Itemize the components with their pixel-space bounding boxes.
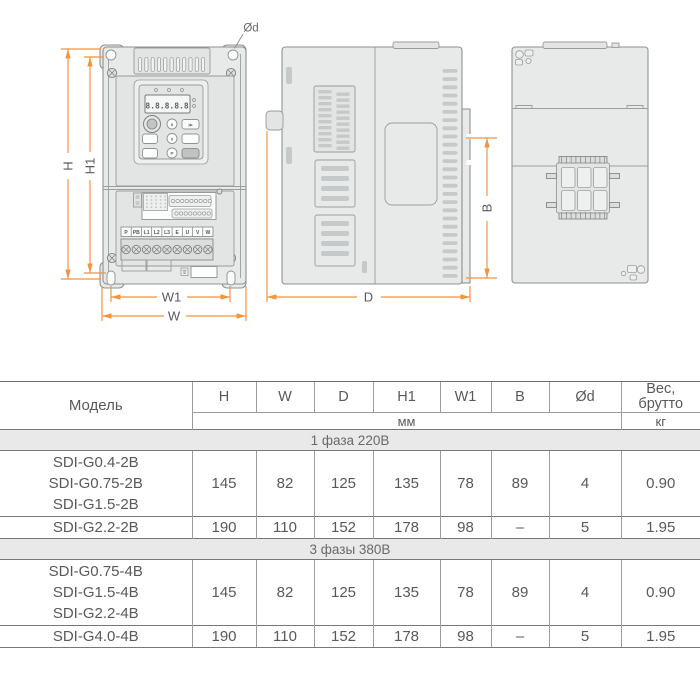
mount-hole <box>106 50 116 60</box>
din-clip-lug <box>547 203 557 208</box>
unit-led <box>193 105 196 108</box>
top-tab <box>543 42 607 49</box>
cell-od: 4 <box>549 451 621 517</box>
table-row: SDI-G0.75-4B SDI-G1.5-4B SDI-G2.2-4B 145… <box>0 560 700 626</box>
keypad: 8.8.8.8.8 ∧ ≫ ∨ P <box>134 80 208 164</box>
top-cap <box>393 42 439 49</box>
col-header-b: B <box>491 382 549 413</box>
unit-mm: мм <box>192 413 621 430</box>
cell-weight: 1.95 <box>621 517 700 539</box>
cell-w1: 98 <box>440 626 491 648</box>
dim-label-w: W <box>168 309 181 324</box>
model-name: SDI-G0.4-2B <box>0 452 192 473</box>
side-body <box>282 47 462 284</box>
model-cell: SDI-G0.4-2B SDI-G0.75-2B SDI-G1.5-2B <box>0 451 192 517</box>
terminal-label: PB <box>133 230 140 236</box>
cell-b: – <box>491 626 549 648</box>
model-name: SDI-G2.2-2B <box>0 517 192 538</box>
cell-w1: 78 <box>440 560 491 626</box>
status-led <box>168 89 171 92</box>
din-clip-lug <box>547 174 557 179</box>
col-header-od: Ød <box>549 382 621 413</box>
cell-b: – <box>491 517 549 539</box>
cell-w: 110 <box>256 626 314 648</box>
section-row-3phase: 3 фазы 380В <box>0 539 700 560</box>
cell-h1: 178 <box>373 626 440 648</box>
cell-w: 82 <box>256 560 314 626</box>
cell-w1: 98 <box>440 517 491 539</box>
unit-kg: кг <box>621 413 700 430</box>
section-label: 3 фазы 380В <box>0 539 700 560</box>
top-nub <box>612 43 619 48</box>
front-view: 8.8.8.8.8 ∧ ≫ ∨ P <box>100 45 246 288</box>
status-led <box>181 89 184 92</box>
cell-d: 152 <box>314 626 373 648</box>
model-name: SDI-G1.5-2B <box>0 494 192 515</box>
dim-label-w1: W1 <box>162 290 182 305</box>
potentiometer-knob-center <box>147 119 157 129</box>
cell-h1: 135 <box>373 451 440 517</box>
terminal-screws <box>122 245 212 253</box>
cell-h: 190 <box>192 626 256 648</box>
section-row-1phase: 1 фаза 220В <box>0 430 700 451</box>
cell-weight: 0.90 <box>621 451 700 517</box>
cell-od: 4 <box>549 560 621 626</box>
rear-view <box>512 42 648 283</box>
cell-h: 190 <box>192 517 256 539</box>
stop-button <box>143 149 158 159</box>
board-screw <box>217 189 222 194</box>
terminal-label: L1 <box>144 230 150 236</box>
terminal-label: W <box>206 230 211 236</box>
unit-led <box>193 99 196 102</box>
shift-icon: ≫ <box>188 123 193 128</box>
cell-d: 125 <box>314 451 373 517</box>
side-view <box>266 42 472 284</box>
cell-b: 89 <box>491 560 549 626</box>
col-header-weight: Вес, брутто <box>621 382 700 413</box>
cell-h1: 135 <box>373 560 440 626</box>
col-header-w1: W1 <box>440 382 491 413</box>
weight-header-line1: Вес, <box>622 382 700 397</box>
status-led <box>155 89 158 92</box>
section-label: 1 фаза 220В <box>0 430 700 451</box>
cell-od: 5 <box>549 626 621 648</box>
col-header-w: W <box>256 382 314 413</box>
model-name: SDI-G4.0-4B <box>0 626 192 647</box>
model-name: SDI-G0.75-4B <box>0 561 192 582</box>
mount-hole <box>228 50 238 60</box>
terminal-label: U <box>186 230 190 236</box>
front-slot <box>286 67 292 84</box>
front-slot <box>286 147 292 164</box>
mode-button <box>143 134 158 144</box>
weight-header-line2: брутто <box>622 397 700 412</box>
cell-w: 82 <box>256 451 314 517</box>
cell-h: 145 <box>192 560 256 626</box>
dimensions-table: Модель H W D H1 W1 B Ød Вес, брутто мм к… <box>0 381 700 648</box>
enter-button <box>182 134 199 144</box>
cell-od: 5 <box>549 517 621 539</box>
table-header-row: Модель H W D H1 W1 B Ød Вес, брутто <box>0 382 700 413</box>
din-clip-lug <box>610 174 620 179</box>
cell-weight: 1.95 <box>621 626 700 648</box>
cell-d: 152 <box>314 517 373 539</box>
model-name: SDI-G1.5-4B <box>0 582 192 603</box>
terminal-labels: P PB L1 L2 L3 E U V W <box>124 230 210 236</box>
table-row: SDI-G2.2-2B 190 110 152 178 98 – 5 1.95 <box>0 517 700 539</box>
col-header-model: Модель <box>0 382 192 430</box>
mount-slot <box>107 271 115 285</box>
din-clip-lug <box>610 203 620 208</box>
cell-h: 145 <box>192 451 256 517</box>
mount-slot <box>227 271 235 285</box>
knob-protrusion <box>266 111 283 130</box>
cell-b: 89 <box>491 451 549 517</box>
col-header-h: H <box>192 382 256 413</box>
cell-w1: 78 <box>440 451 491 517</box>
col-header-h1: H1 <box>373 382 440 413</box>
cell-weight: 0.90 <box>621 560 700 626</box>
cell-h1: 178 <box>373 517 440 539</box>
model-name: SDI-G2.2-4B <box>0 603 192 624</box>
dim-label-hole-diameter: Ød <box>243 23 258 35</box>
control-connector-top-pins <box>171 199 211 202</box>
cell-w: 110 <box>256 517 314 539</box>
model-cell: SDI-G0.75-4B SDI-G1.5-4B SDI-G2.2-4B <box>0 560 192 626</box>
display-digits: 8.8.8.8.8 <box>145 102 189 111</box>
datasheet-page: 8.8.8.8.8 ∧ ≫ ∨ P <box>0 0 700 700</box>
p-button-label: P <box>170 151 173 156</box>
run-button <box>182 149 199 159</box>
dim-label-d: D <box>364 290 373 305</box>
dim-label-h1: H1 <box>83 158 98 175</box>
terminal-label: L2 <box>154 230 160 236</box>
col-header-d: D <box>314 382 373 413</box>
model-cell: SDI-G2.2-2B <box>0 517 192 539</box>
model-name: SDI-G0.75-2B <box>0 473 192 494</box>
nameplate <box>191 267 217 278</box>
control-terminal-area <box>134 189 223 220</box>
cell-d: 125 <box>314 560 373 626</box>
dim-label-h: H <box>61 161 76 170</box>
table-row: SDI-G4.0-4B 190 110 152 178 98 – 5 1.95 <box>0 626 700 648</box>
model-cell: SDI-G4.0-4B <box>0 626 192 648</box>
bottom-slot <box>362 261 367 273</box>
table-row: SDI-G0.4-2B SDI-G0.75-2B SDI-G1.5-2B 145… <box>0 451 700 517</box>
dim-label-b: B <box>480 204 495 213</box>
terminal-label: L3 <box>164 230 170 236</box>
dimension-drawings: 8.8.8.8.8 ∧ ≫ ∨ P <box>0 0 700 360</box>
